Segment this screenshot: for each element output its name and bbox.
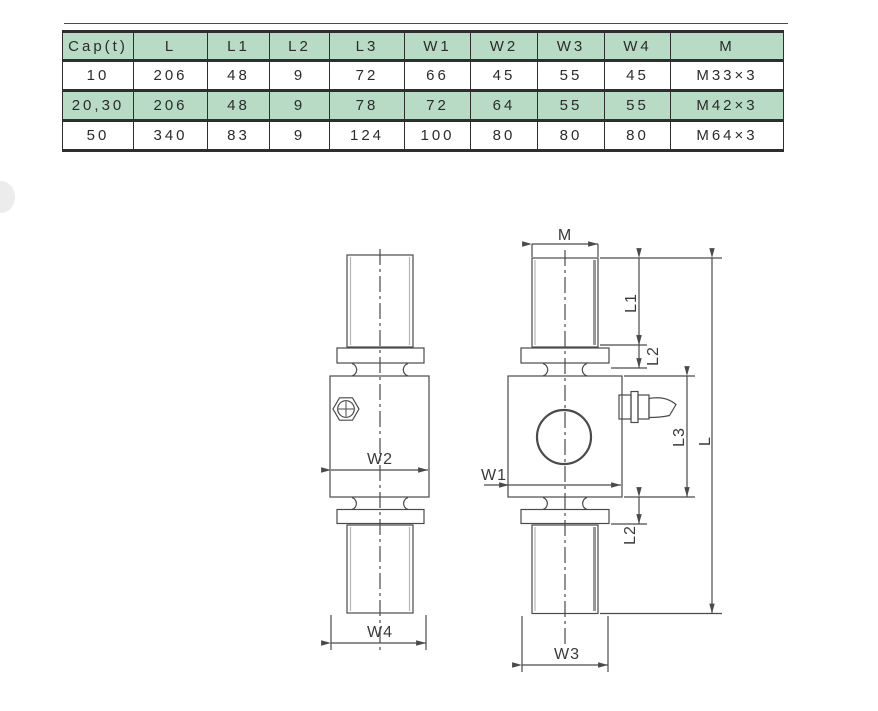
dim-label-w4: W4	[367, 624, 393, 641]
body-bore-circle	[537, 410, 591, 464]
cable-gland	[619, 392, 676, 423]
dim-label-l2-lower: L2	[622, 525, 639, 545]
dim-label-m: M	[558, 227, 572, 244]
dim-label-l1: L1	[623, 293, 640, 313]
dim-label-w3: W3	[554, 646, 580, 663]
load-cell-drawing: W2 W4 M W1 W3 L1 L2 L2 L3 L	[0, 0, 878, 711]
dim-label-w1: W1	[481, 467, 507, 484]
scan-artifact	[0, 181, 15, 213]
dim-label-l: L	[697, 436, 714, 446]
dim-label-w2: W2	[367, 451, 393, 468]
hex-bolt-icon	[333, 398, 359, 420]
cable	[649, 398, 676, 418]
dim-label-l3: L3	[671, 427, 688, 447]
left-bottom-neck	[352, 498, 356, 510]
page: { "table": { "columns": ["Cap(t)", "L", …	[0, 0, 878, 711]
right-top-neck	[543, 364, 548, 377]
left-top-neck	[352, 364, 357, 377]
right-bottom-neck	[543, 498, 547, 510]
right-view	[484, 244, 722, 672]
dim-label-l2-upper: L2	[645, 346, 662, 366]
